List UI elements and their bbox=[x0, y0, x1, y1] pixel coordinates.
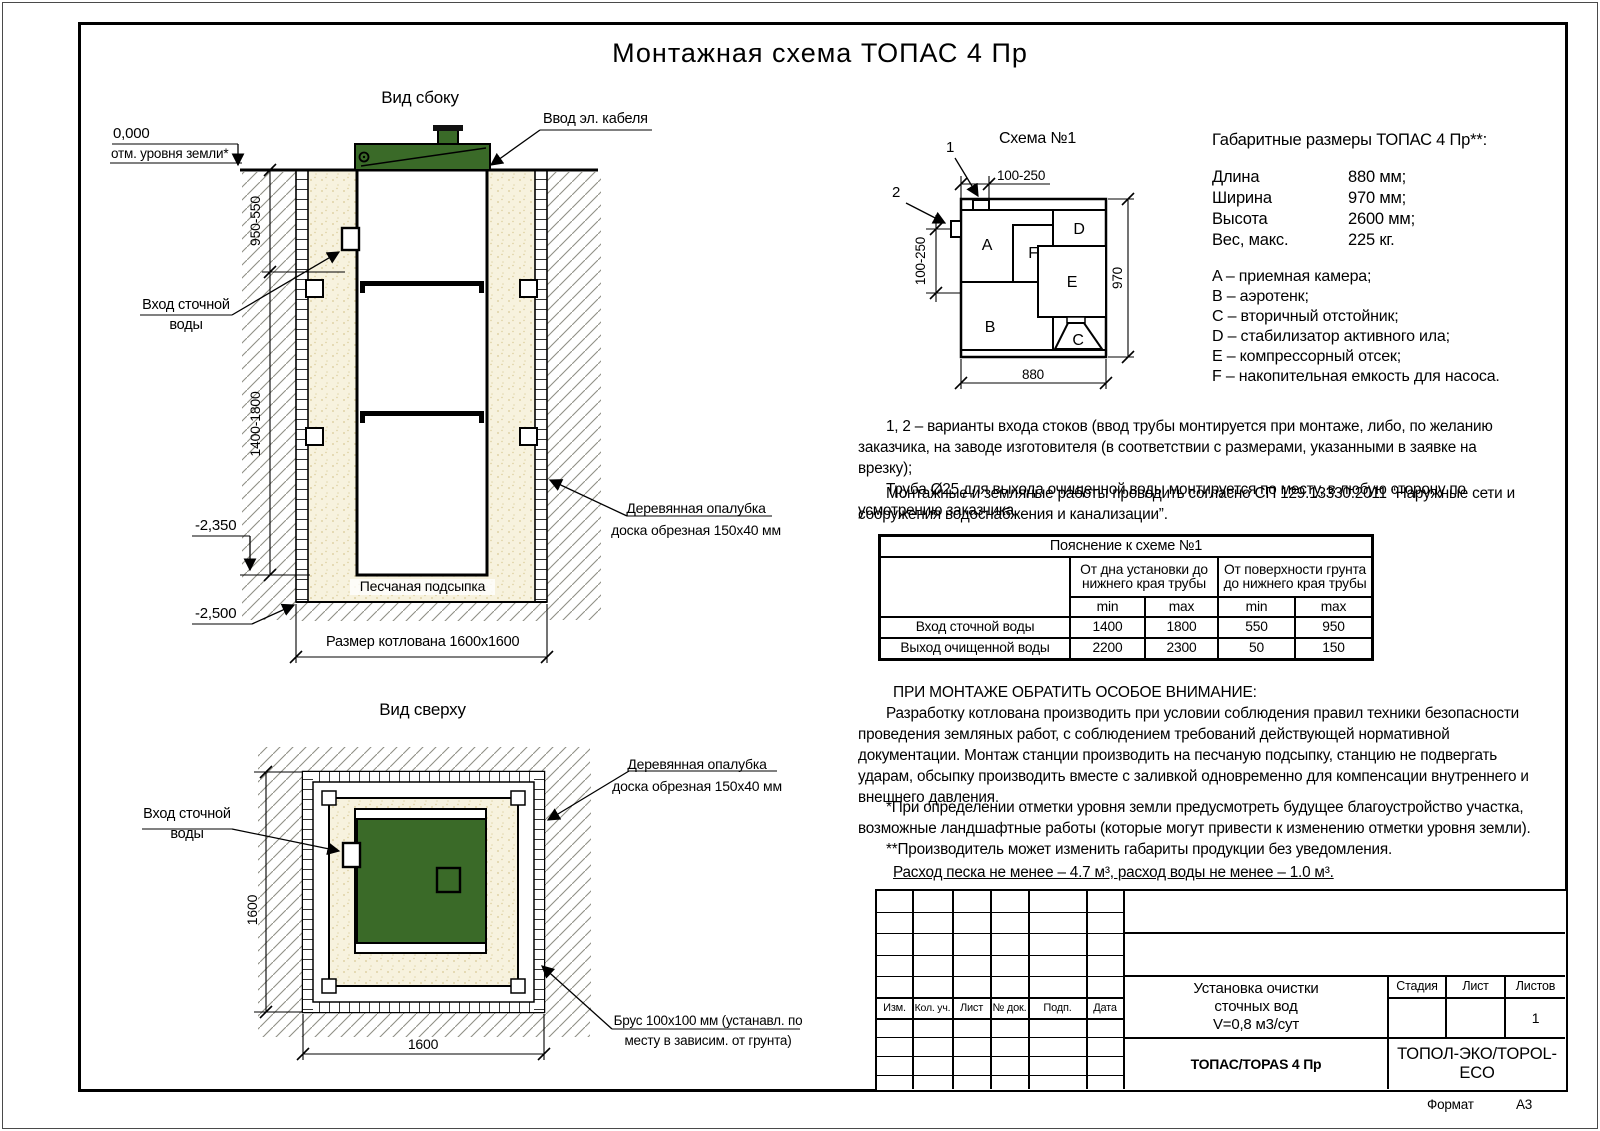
table-group1-header: От дна установки до нижнего края трубы bbox=[1070, 557, 1218, 597]
formwork-label-top-line1: Деревянная опалубка bbox=[607, 753, 787, 775]
inlet-label-side: Вход сточной воды bbox=[136, 297, 236, 333]
sheets-value: 1 bbox=[1506, 999, 1565, 1037]
company-cell: ТОПОЛ-ЭКО/TOPOL-ECO bbox=[1389, 1039, 1565, 1089]
rev-col-list: Лист bbox=[953, 997, 990, 1018]
tank-body bbox=[357, 170, 487, 575]
formwork-right bbox=[535, 170, 547, 602]
legend-item-d: D – стабилизатор активного ила; bbox=[1212, 328, 1450, 346]
tank-lid bbox=[355, 125, 490, 170]
level-2500-label: -2,500 bbox=[195, 606, 236, 623]
legend-item-a: A – приемная камера; bbox=[1212, 268, 1371, 286]
sheet-header: Лист bbox=[1447, 975, 1504, 997]
attention-body-text: Разработку котлована производить при усл… bbox=[858, 703, 1536, 808]
project-name-line3: V=0,8 м3/сут bbox=[1213, 1016, 1299, 1034]
format-value: А3 bbox=[1516, 1097, 1532, 1112]
rev-col-podp: Подп. bbox=[1029, 997, 1086, 1018]
formwork-label-side: Деревянная опалубка доска обрезная 150x4… bbox=[606, 497, 786, 541]
consumption-note: Расход песка не менее – 4.7 м³, расход в… bbox=[893, 864, 1334, 881]
level-2350-label: -2,350 bbox=[195, 518, 236, 535]
cable-label: Ввод эл. кабеля bbox=[543, 111, 648, 127]
page-title: Монтажная схема ТОПАС 4 Пр bbox=[540, 38, 1100, 68]
model-cell: ТОПАС/TOPAS 4 Пр bbox=[1125, 1039, 1387, 1089]
note-p3: Монтажные и земляные работы проводить со… bbox=[858, 483, 1534, 525]
attention-body: Разработку котлована производить при усл… bbox=[858, 703, 1536, 808]
project-name-line1: Установка очистки bbox=[1193, 980, 1318, 998]
rev-col-data: Дата bbox=[1087, 997, 1123, 1018]
spec-value-length: 880 мм; bbox=[1348, 168, 1406, 186]
spec-label-width: Ширина bbox=[1212, 189, 1272, 207]
formwork-label-top-line2: доска обрезная 150x40 мм bbox=[607, 775, 787, 797]
footnotes: *При определении отметки уровня земли пр… bbox=[858, 797, 1534, 860]
dim-950-550: 950-550 bbox=[247, 196, 263, 246]
footnote-2: **Производитель может изменить габариты … bbox=[858, 839, 1534, 860]
dim-1600-horizontal: 1600 bbox=[408, 1036, 439, 1052]
project-name-cell: Установка очистки сточных вод V=0,8 м3/с… bbox=[1125, 977, 1387, 1037]
rev-col-koluch: Кол. уч. bbox=[913, 997, 952, 1018]
inlet-stub-1 bbox=[973, 200, 989, 210]
title-block: Изм. Кол. уч. Лист № док. Подп. Дата Уст… bbox=[875, 889, 1568, 1092]
sheets-header: Листов bbox=[1506, 975, 1565, 997]
timber-label-line1: Брус 100x100 мм (устанавл. по bbox=[608, 1011, 808, 1031]
schema-marker-2: 2 bbox=[892, 185, 900, 202]
table-cell: 2200 bbox=[1070, 638, 1145, 659]
table-cell: 1400 bbox=[1070, 617, 1145, 638]
lid-vent-top bbox=[437, 868, 460, 892]
inlet-label-top: Вход сточной воды bbox=[137, 806, 237, 842]
top-view-title: Вид сверху bbox=[365, 700, 480, 719]
table-row-label: Вход сточной воды bbox=[880, 617, 1070, 638]
pit-size-label: Размер котлована 1600x1600 bbox=[326, 634, 518, 650]
formwork-left bbox=[296, 170, 308, 602]
formwork-label-side-line2: доска обрезная 150x40 мм bbox=[606, 519, 786, 541]
table-row-label: Выход очищенной воды bbox=[880, 638, 1070, 659]
lid-vent bbox=[438, 130, 458, 144]
schema-dim-left: 100-250 bbox=[913, 237, 928, 285]
inlet-opening-side bbox=[342, 228, 359, 250]
inlet-stub-2 bbox=[951, 221, 961, 237]
table-cell: 950 bbox=[1295, 617, 1372, 638]
format-label: Формат bbox=[1427, 1097, 1474, 1112]
legend-item-b: B – аэротенк; bbox=[1212, 288, 1309, 306]
inlet-label-top-line2: воды bbox=[137, 826, 237, 842]
compartment-e-label: E bbox=[1067, 274, 1077, 291]
spec-label-length: Длина bbox=[1212, 168, 1259, 186]
schema-marker-1: 1 bbox=[946, 140, 954, 157]
legend-item-f: F – накопительная емкость для насоса. bbox=[1212, 368, 1500, 386]
sand-bedding-label: Песчаная подсыпка bbox=[350, 579, 495, 595]
ground-mark-label: отм. уровня земли* bbox=[111, 146, 228, 161]
explanation-table: Пояснение к схеме №1 От дна установки до… bbox=[878, 534, 1374, 661]
table-title: Пояснение к схеме №1 bbox=[880, 536, 1372, 557]
inlet-label-side-line1: Вход сточной bbox=[136, 297, 236, 313]
hatch-bottom bbox=[296, 603, 547, 621]
table-max-header-1: max bbox=[1145, 597, 1218, 617]
inlet-label-top-line1: Вход сточной bbox=[137, 806, 237, 822]
notes-regulations: Монтажные и земляные работы проводить со… bbox=[858, 483, 1534, 525]
dim-1600-vertical: 1600 bbox=[244, 894, 260, 925]
table-cell: 2300 bbox=[1145, 638, 1218, 659]
compartment-d-label: D bbox=[1073, 221, 1084, 238]
project-name-line2: сточных вод bbox=[1214, 998, 1297, 1016]
schema-dim-bottom: 880 bbox=[1022, 367, 1044, 382]
table-cell: 550 bbox=[1218, 617, 1295, 638]
timber-label-line2: месту в зависим. от грунта) bbox=[608, 1031, 808, 1051]
footnote-1: *При определении отметки уровня земли пр… bbox=[858, 797, 1534, 839]
hatch-right bbox=[547, 172, 601, 620]
spec-label-height: Высота bbox=[1212, 210, 1267, 228]
tank-lid-top bbox=[357, 819, 486, 943]
legend-item-e: E – компрессорный отсек; bbox=[1212, 348, 1401, 366]
timber-label: Брус 100x100 мм (устанавл. по месту в за… bbox=[608, 1011, 808, 1051]
rev-col-izm: Изм. bbox=[877, 997, 912, 1018]
zero-mark-label: 0,000 bbox=[113, 126, 150, 143]
schema-drawing: A F D E B C 100-250 100-250 970 880 bbox=[906, 158, 1134, 389]
compartment-f-label: F bbox=[1028, 245, 1038, 262]
table-max-header-2: max bbox=[1295, 597, 1372, 617]
dim-1400-1800: 1400-1800 bbox=[247, 391, 263, 457]
inlet-opening-top bbox=[343, 843, 360, 867]
specs-heading: Габаритные размеры ТОПАС 4 Пр**: bbox=[1212, 131, 1487, 149]
table-corner-cell bbox=[880, 557, 1070, 617]
formwork-label-side-line1: Деревянная опалубка bbox=[606, 497, 786, 519]
table-cell: 1800 bbox=[1145, 617, 1218, 638]
spec-value-width: 970 мм; bbox=[1348, 189, 1406, 207]
formwork-label-top: Деревянная опалубка доска обрезная 150x4… bbox=[607, 753, 787, 797]
schema-dim-right: 970 bbox=[1110, 267, 1125, 289]
table-group2-header: От поверхности грунта до нижнего края тр… bbox=[1218, 557, 1372, 597]
spec-value-height: 2600 мм; bbox=[1348, 210, 1415, 228]
legend-item-c: C – вторичный отстойник; bbox=[1212, 308, 1399, 326]
side-view-title: Вид сбоку bbox=[355, 88, 485, 107]
table-cell: 150 bbox=[1295, 638, 1372, 659]
note-p1: 1, 2 – варианты входа стоков (ввод трубы… bbox=[858, 416, 1534, 479]
inlet-label-side-line2: воды bbox=[136, 317, 236, 333]
rev-col-ndok: № док. bbox=[991, 997, 1028, 1018]
table-min-header-2: min bbox=[1218, 597, 1295, 617]
stage-header: Стадия bbox=[1389, 975, 1445, 997]
compartment-a-label: A bbox=[982, 237, 993, 254]
table-cell: 50 bbox=[1218, 638, 1295, 659]
schema-title: Схема №1 bbox=[985, 130, 1090, 148]
spec-value-weight: 225 кг. bbox=[1348, 231, 1395, 249]
compartment-b-label: B bbox=[985, 319, 995, 336]
attention-heading: ПРИ МОНТАЖЕ ОБРАТИТЬ ОСОБОЕ ВНИМАНИЕ: bbox=[893, 684, 1257, 701]
compartment-c-label: C bbox=[1072, 332, 1083, 349]
schema-dim-top: 100-250 bbox=[997, 168, 1045, 183]
drawing-sheet: 950-550 1400-1800 bbox=[0, 0, 1600, 1131]
table-min-header-1: min bbox=[1070, 597, 1145, 617]
spec-label-weight: Вес, макс. bbox=[1212, 231, 1288, 249]
